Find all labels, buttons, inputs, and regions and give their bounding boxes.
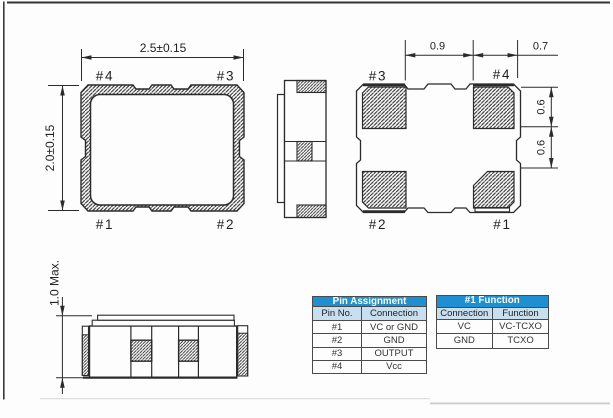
svg-text:#1: #1 — [96, 217, 115, 232]
svg-text:1.0 Max.: 1.0 Max. — [48, 260, 62, 306]
svg-text:#2: #2 — [217, 217, 236, 232]
svg-text:0.9: 0.9 — [430, 41, 445, 53]
svg-text:#2: #2 — [369, 217, 388, 232]
svg-text:2.5±0.15: 2.5±0.15 — [140, 41, 187, 55]
svg-text:0.6: 0.6 — [536, 99, 548, 114]
svg-text:0.7: 0.7 — [533, 41, 548, 53]
svg-text:#3: #3 — [217, 69, 236, 84]
svg-text:#4: #4 — [96, 69, 115, 84]
svg-text:#1: #1 — [493, 217, 512, 232]
svg-text:#3: #3 — [369, 69, 388, 84]
svg-text:#4: #4 — [493, 67, 512, 82]
svg-text:2.0±0.15: 2.0±0.15 — [43, 124, 57, 171]
svg-text:0.6: 0.6 — [536, 140, 548, 155]
